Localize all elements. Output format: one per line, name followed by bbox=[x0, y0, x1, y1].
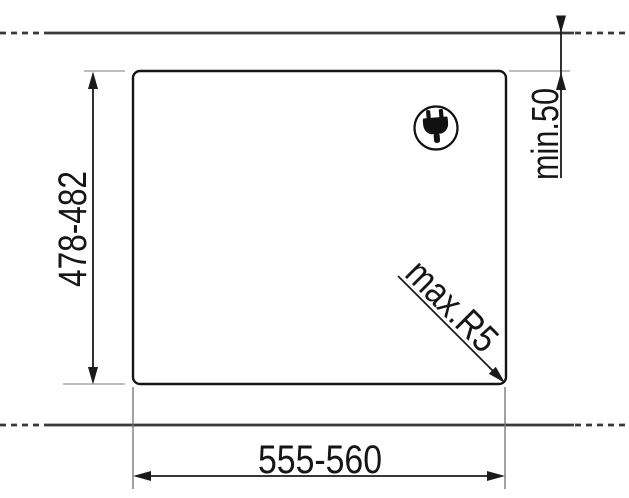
arrow-up-icon bbox=[556, 72, 566, 90]
power-plug-icon bbox=[415, 107, 458, 150]
arrow-down-icon bbox=[88, 367, 98, 385]
height-dimension-label: 478-482 bbox=[51, 171, 95, 287]
height-dimension: 478-482 bbox=[51, 71, 125, 385]
arrow-right-icon bbox=[487, 471, 505, 481]
rear-clearance-label: min.50 bbox=[525, 88, 567, 180]
plug-prong-left bbox=[426, 110, 431, 119]
installation-diagram: 478-482 555-560 min.50 max.R5 bbox=[0, 0, 629, 498]
plug-stem bbox=[433, 133, 440, 143]
plug-prong-right bbox=[439, 109, 444, 118]
arrow-left-icon bbox=[133, 471, 151, 481]
arrow-up-icon bbox=[88, 72, 98, 90]
width-dimension-label: 555-560 bbox=[258, 438, 382, 482]
rear-clearance-dimension: min.50 bbox=[509, 16, 570, 181]
arrow-down-icon bbox=[556, 16, 566, 34]
width-dimension: 555-560 bbox=[133, 387, 505, 489]
